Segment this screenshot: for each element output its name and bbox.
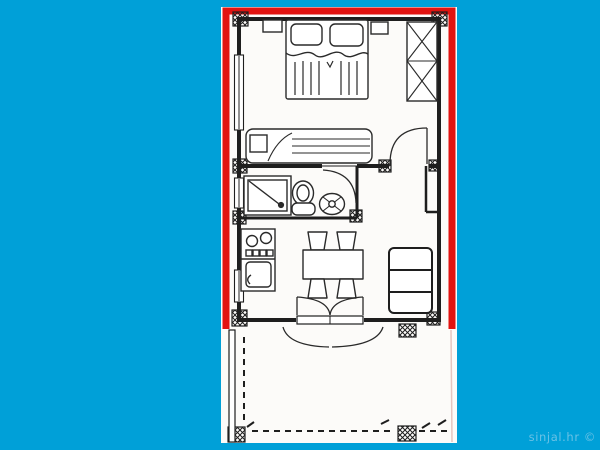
- wardrobe-icon: [407, 22, 437, 101]
- column-icon: [399, 324, 416, 337]
- paper-edge: [451, 330, 452, 442]
- column-icon: [379, 160, 391, 172]
- column-icon: [427, 312, 440, 325]
- window-icon: [235, 55, 244, 130]
- window-icon: [235, 178, 244, 208]
- column-icon: [233, 12, 248, 26]
- dining-table-icon: [303, 250, 363, 279]
- chair-icon: [308, 279, 327, 298]
- living-area: [389, 248, 432, 313]
- pillow-icon: [291, 24, 322, 45]
- column-icon: [398, 426, 416, 441]
- column-icon: [232, 310, 247, 326]
- toilet-icon: [292, 181, 315, 215]
- watermark-text: sinjal.hr ©: [529, 430, 596, 444]
- chair-icon: [308, 232, 327, 250]
- nightstand-icon: [263, 20, 282, 32]
- chair-icon: [337, 232, 356, 250]
- column-icon: [429, 160, 440, 171]
- chair-icon: [337, 279, 356, 298]
- terrace-side-wall: [229, 330, 235, 442]
- column-icon: [233, 159, 247, 173]
- floor-plan-photo: sinjal.hr ©: [0, 0, 600, 450]
- nightstand-icon: [371, 22, 388, 34]
- washbasin-icon: [320, 194, 345, 215]
- floor-plan-canvas: sinjal.hr ©: [0, 0, 600, 450]
- shower-icon: [244, 176, 291, 215]
- kitchen: [241, 229, 275, 291]
- column-icon: [350, 210, 362, 222]
- sofa-icon: [389, 248, 432, 313]
- pillow-icon: [330, 24, 363, 46]
- kitchen-sink-icon: [246, 262, 271, 287]
- pillow-icon: [250, 135, 267, 152]
- single-bed-icon: [246, 129, 372, 163]
